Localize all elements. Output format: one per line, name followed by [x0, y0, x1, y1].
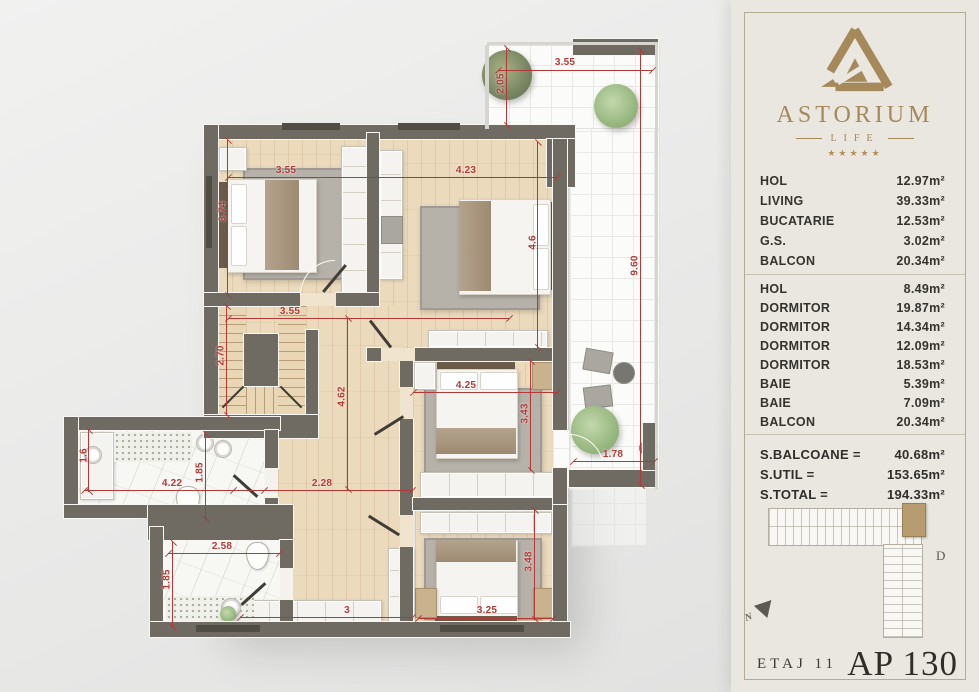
bed-blanket — [436, 428, 516, 454]
astorium-logo-icon — [816, 22, 894, 92]
dim-line — [168, 553, 280, 554]
wall-segment — [64, 417, 78, 518]
total-value: 153.65m² — [887, 467, 945, 482]
brand-subtitle: LIFE — [731, 133, 979, 144]
room-name: BUCATARIE — [760, 214, 834, 228]
window — [440, 625, 524, 632]
dim-label: 3.55 — [268, 165, 304, 176]
room-row: BAIE7.09m² — [760, 393, 945, 413]
brand-name: ASTORIUM — [731, 102, 979, 129]
dim-label: 2.70 — [216, 338, 227, 374]
dim-label: 3.48 — [524, 544, 535, 580]
dresser — [381, 216, 403, 244]
window — [282, 123, 340, 130]
window — [196, 625, 260, 632]
pillow — [231, 226, 247, 266]
stair-core — [244, 334, 278, 386]
wardrobe — [341, 146, 369, 298]
room-name: BAIE — [760, 396, 791, 410]
room-area: 14.34m² — [896, 320, 945, 334]
brand-stars: ★★★★★ — [731, 148, 979, 159]
brand-line — [888, 138, 914, 139]
totals-row: S.UTIL =153.65m² — [760, 464, 945, 484]
total-value: 194.33m² — [887, 487, 945, 502]
dim-label: 4.23 — [448, 165, 484, 176]
room-area: 19.87m² — [896, 301, 945, 315]
floor-plan: 3.55 4.23 3.74 4.6 3.55 2.05 9.60 1.78 3… — [0, 0, 731, 692]
room-area: 18.53m² — [896, 358, 945, 372]
dim-label: 4.22 — [154, 478, 190, 489]
room-area: 5.39m² — [904, 377, 945, 391]
dim-label: 3 — [329, 605, 365, 616]
room-area: 12.09m² — [896, 339, 945, 353]
wall-segment — [553, 468, 567, 509]
divider — [745, 274, 965, 275]
wall-segment — [413, 498, 552, 510]
lounge-chair — [582, 348, 613, 375]
wall-segment — [148, 505, 293, 540]
room-name: BALCON — [760, 415, 815, 429]
dim-label: 2.05 — [496, 66, 507, 102]
wall-segment — [367, 348, 381, 361]
room-area: 8.49m² — [904, 282, 945, 296]
wall-segment — [280, 540, 293, 568]
shower-floor — [114, 432, 192, 462]
window — [206, 176, 212, 248]
sink — [214, 440, 232, 458]
site-plan-highlighted-unit — [902, 503, 926, 537]
building-letter: D — [936, 548, 945, 564]
nightstand — [219, 147, 247, 171]
door-opening — [400, 515, 413, 547]
total-value: 40.68m² — [894, 447, 945, 462]
room-name: BAIE — [760, 377, 791, 391]
wardrobe — [379, 150, 403, 280]
dim-line — [573, 461, 655, 462]
room-name: DORMITOR — [760, 339, 830, 353]
wall-segment — [553, 139, 567, 430]
dresser — [420, 472, 554, 498]
balcony-door-threshold — [553, 430, 569, 470]
wall-segment — [367, 133, 379, 305]
balcony-railing — [655, 45, 658, 489]
total-label: S.BALCOANE = — [760, 447, 861, 462]
floorplan-sheet: 3.55 4.23 3.74 4.6 3.55 2.05 9.60 1.78 3… — [0, 0, 979, 692]
wall-segment — [204, 293, 300, 306]
floor-label: ETAJ 11 — [757, 656, 837, 673]
room-row: LIVING39.33m² — [760, 191, 945, 211]
floor-balcony-neighbor — [571, 487, 647, 547]
bed-blanket — [265, 180, 299, 270]
wall-segment — [400, 547, 413, 622]
room-name: HOL — [760, 282, 787, 296]
dim-label: 3.55 — [547, 57, 583, 68]
apartment-label: AP 130 — [847, 644, 958, 684]
dim-label: 3.74 — [218, 194, 229, 230]
dim-label: 3.55 — [272, 306, 308, 317]
room-row: G.S.3.02m² — [760, 231, 945, 251]
window — [398, 123, 460, 130]
room-row: HOL12.97m² — [760, 171, 945, 191]
dim-line — [413, 392, 558, 393]
brand-sub-text: LIFE — [830, 133, 879, 144]
dim-label: 1.85 — [162, 562, 173, 598]
nightstand — [414, 362, 436, 390]
wall-segment — [336, 293, 379, 306]
door-opening — [280, 568, 293, 600]
dim-label: 4.25 — [448, 380, 484, 391]
door-opening — [381, 348, 415, 361]
room-name: LIVING — [760, 194, 803, 208]
bed-blanket — [459, 201, 491, 291]
door-opening — [265, 468, 278, 498]
room-row: DORMITOR12.09m² — [760, 336, 945, 356]
dim-label: 9.60 — [630, 248, 641, 284]
totals-row: S.TOTAL =194.33m² — [760, 484, 945, 504]
room-name: DORMITOR — [760, 301, 830, 315]
room-area: 7.09m² — [904, 396, 945, 410]
balcony-parapet-wall — [569, 470, 658, 487]
room-name: BALCON — [760, 254, 815, 268]
dim-label: 4.62 — [337, 379, 348, 415]
bed-headboard — [437, 362, 515, 369]
patio-table — [613, 362, 635, 384]
wall-segment — [64, 417, 280, 430]
nightstand — [415, 588, 437, 618]
room-area: 12.53m² — [896, 214, 945, 228]
room-name: HOL — [760, 174, 787, 188]
dim-label: 2.28 — [304, 478, 340, 489]
wall-segment — [265, 430, 278, 468]
wall-segment — [415, 348, 567, 361]
total-label: S.TOTAL = — [760, 487, 828, 502]
info-panel: ASTORIUM LIFE ★★★★★ HOL12.97m² LIVING39.… — [731, 0, 979, 692]
room-row: BALCON20.34m² — [760, 251, 945, 271]
dim-line — [240, 617, 413, 618]
room-name: DORMITOR — [760, 320, 830, 334]
dim-label: 2.58 — [204, 541, 240, 552]
balcony-railing — [487, 42, 658, 45]
plant — [594, 84, 638, 128]
pillow — [480, 372, 518, 390]
room-row: BALCON20.34m² — [760, 412, 945, 432]
room-name: DORMITOR — [760, 358, 830, 372]
room-row: DORMITOR14.34m² — [760, 317, 945, 337]
site-plan-wing-horizontal — [768, 508, 922, 546]
dim-label: 3.25 — [469, 605, 505, 616]
dim-line — [84, 490, 265, 491]
nightstand — [532, 362, 554, 390]
bench — [428, 330, 548, 348]
room-area: 39.33m² — [896, 194, 945, 208]
room-row: BUCATARIE12.53m² — [760, 211, 945, 231]
wall-segment — [204, 125, 575, 139]
room-area: 20.34m² — [896, 415, 945, 429]
divider — [745, 434, 965, 435]
dim-label: 3.43 — [520, 396, 531, 432]
room-area: 12.97m² — [896, 174, 945, 188]
dim-line — [228, 177, 558, 178]
dim-label: 1.78 — [595, 449, 631, 460]
stair-treads — [246, 386, 278, 415]
room-area: 3.02m² — [904, 234, 945, 248]
total-label: S.UTIL = — [760, 467, 815, 482]
room-row: HOL8.49m² — [760, 279, 945, 299]
room-row: BAIE5.39m² — [760, 374, 945, 394]
dim-line — [498, 70, 653, 71]
wall-segment — [400, 361, 413, 387]
wall-segment — [400, 419, 413, 515]
room-area: 20.34m² — [896, 254, 945, 268]
dim-label: 1.6 — [79, 438, 90, 474]
balcony-railing — [485, 45, 489, 129]
totals-row: S.BALCOANE =40.68m² — [760, 444, 945, 464]
site-plan-wing-vertical — [883, 544, 923, 638]
room-row: DORMITOR19.87m² — [760, 298, 945, 318]
room-name: G.S. — [760, 234, 786, 248]
dim-line — [228, 318, 510, 319]
dim-label: 4.6 — [528, 225, 539, 261]
pillow — [231, 184, 247, 224]
brand-line — [796, 138, 822, 139]
plant — [220, 606, 236, 622]
nightstand — [533, 588, 555, 618]
plant — [482, 50, 532, 100]
dim-label: 1.85 — [195, 455, 206, 491]
bed-blanket — [436, 540, 516, 562]
dresser — [420, 512, 552, 534]
room-row: DORMITOR18.53m² — [760, 355, 945, 375]
